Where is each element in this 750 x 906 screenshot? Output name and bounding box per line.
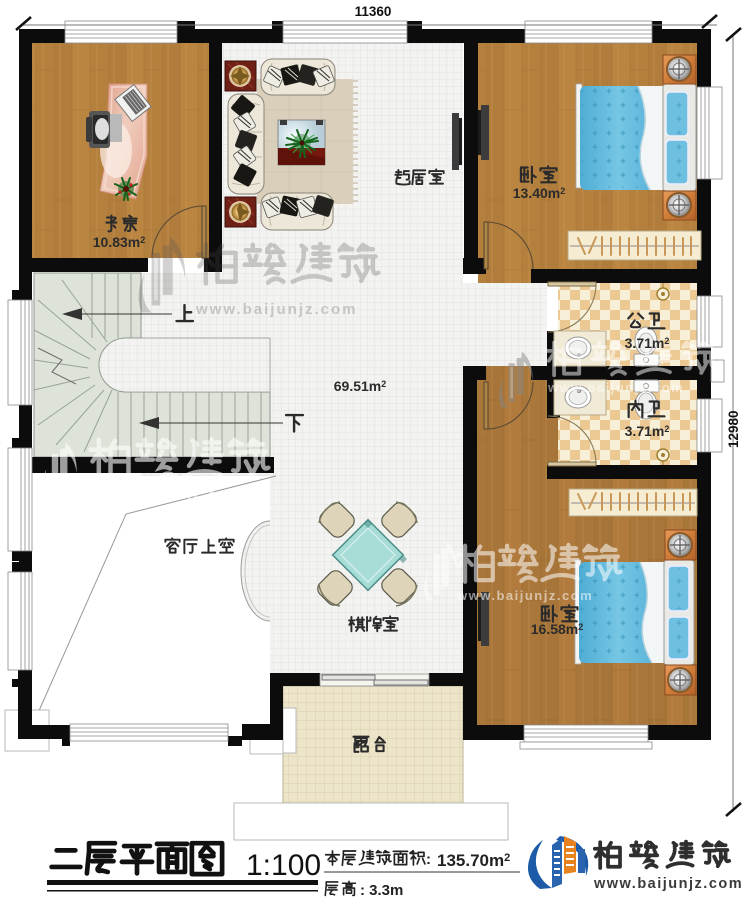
svg-text:www.baijunjz.com: www.baijunjz.com	[593, 876, 743, 892]
svg-text:13.40m2: 13.40m2	[513, 185, 566, 201]
svg-text::: :	[426, 851, 431, 868]
svg-text:www.baijunjz.com: www.baijunjz.com	[547, 380, 684, 395]
svg-text:16.58m2: 16.58m2	[531, 621, 584, 637]
svg-text:3.71m2: 3.71m2	[625, 423, 670, 439]
svg-text:www.baijunjz.com: www.baijunjz.com	[89, 486, 243, 502]
svg-text:135.70m2: 135.70m2	[437, 851, 510, 870]
svg-text:11360: 11360	[355, 4, 392, 19]
svg-text:www.baijunjz.com: www.baijunjz.com	[456, 588, 593, 603]
svg-text:3.71m2: 3.71m2	[625, 335, 670, 351]
svg-text:www.baijunjz.com: www.baijunjz.com	[195, 301, 357, 318]
svg-text:10.83m2: 10.83m2	[93, 234, 146, 250]
svg-text:: 3.3m: : 3.3m	[360, 882, 403, 899]
svg-text:69.51m2: 69.51m2	[334, 378, 387, 394]
svg-text:12980: 12980	[726, 410, 741, 448]
svg-text:1:100: 1:100	[246, 849, 321, 882]
